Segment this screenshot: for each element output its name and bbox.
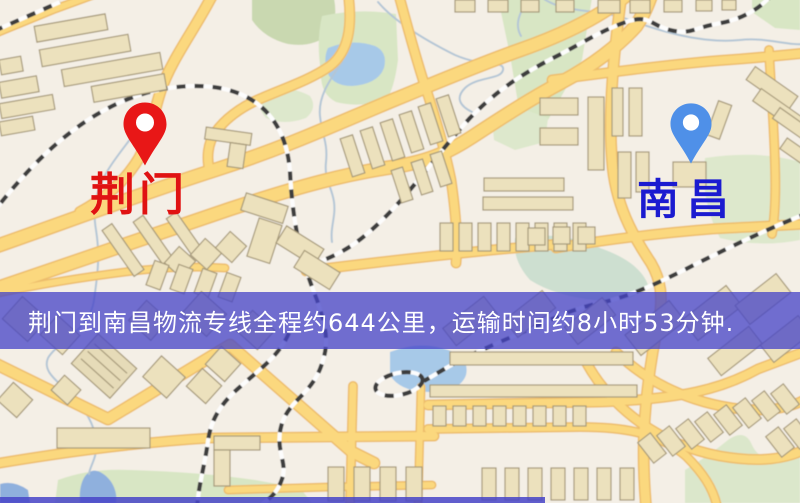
destination-pin[interactable]	[669, 102, 713, 165]
origin-label: 荆门	[90, 172, 188, 217]
destination-label: 南昌	[637, 179, 737, 221]
red-pin-icon	[122, 101, 168, 167]
blue-pin-icon	[669, 102, 713, 165]
route-info-text: 荆门到南昌物流专线全程约644公里，运输时间约8小时53分钟.	[28, 303, 734, 338]
map-screenshot: 荆门到南昌物流专线全程约644公里，运输时间约8小时53分钟. 荆门 南昌	[0, 0, 800, 503]
route-info-banner: 荆门到南昌物流专线全程约644公里，运输时间约8小时53分钟.	[0, 292, 800, 349]
partial-bottom-banner	[0, 497, 545, 503]
origin-pin[interactable]	[122, 101, 168, 167]
map-background[interactable]	[0, 0, 800, 503]
